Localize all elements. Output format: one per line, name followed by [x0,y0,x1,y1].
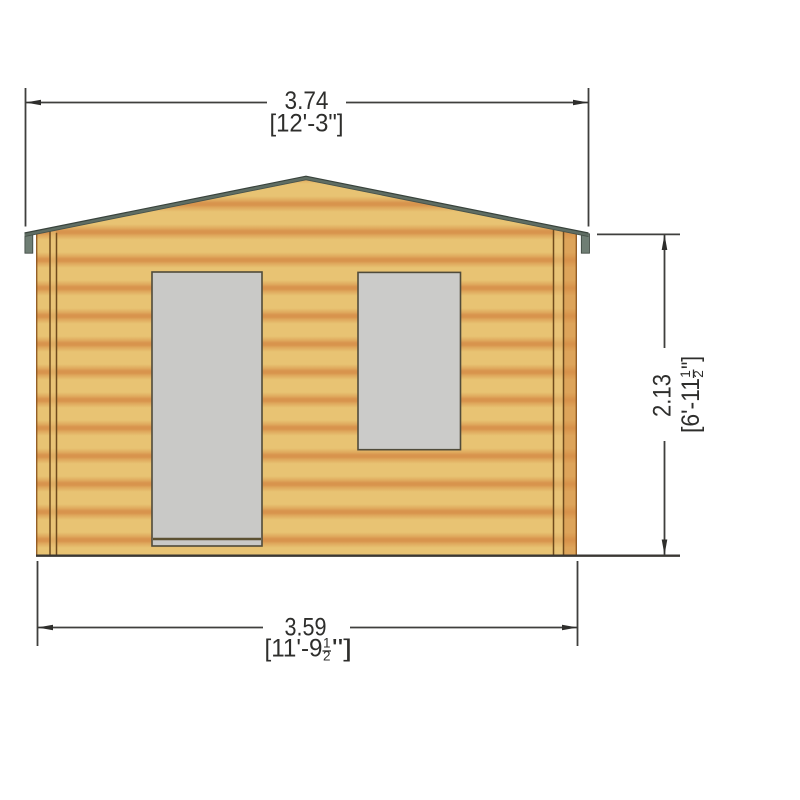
svg-text:2: 2 [691,370,706,378]
svg-text:[11'-9: [11'-9 [265,635,323,663]
svg-text:2: 2 [323,649,331,664]
svg-text:"]: "] [332,635,352,663]
svg-text:2.13: 2.13 [649,374,677,417]
svg-text:[12'-3"]: [12'-3"] [270,110,344,138]
svg-text:"]: "] [677,356,705,369]
svg-text:[6'-11: [6'-11 [677,378,705,433]
